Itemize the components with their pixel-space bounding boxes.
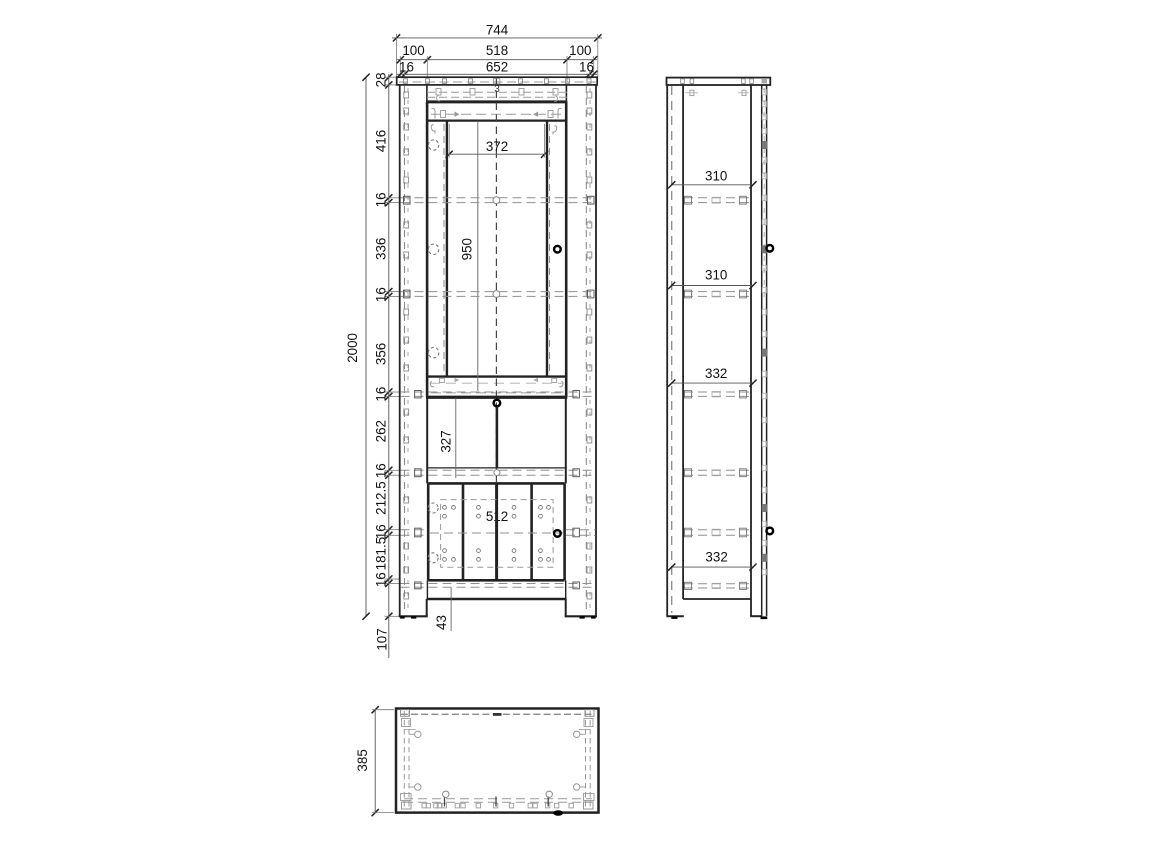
svg-text:16: 16 [579,59,594,74]
svg-text:16: 16 [374,572,389,587]
svg-text:16: 16 [374,192,389,207]
svg-text:16: 16 [399,59,414,74]
svg-text:950: 950 [460,238,475,260]
svg-text:327: 327 [439,430,454,452]
svg-text:212.5: 212.5 [374,481,389,515]
svg-text:43: 43 [434,615,449,630]
svg-text:28: 28 [374,72,389,87]
svg-text:2000: 2000 [345,333,360,363]
svg-text:385: 385 [355,749,370,771]
svg-text:518: 518 [486,43,508,58]
svg-text:16: 16 [374,387,389,402]
svg-text:356: 356 [374,343,389,365]
svg-text:310: 310 [705,268,727,283]
svg-text:16: 16 [374,287,389,302]
svg-text:416: 416 [374,130,389,152]
svg-text:100: 100 [402,43,424,58]
svg-text:744: 744 [486,23,509,38]
svg-text:332: 332 [705,550,727,565]
svg-text:652: 652 [486,59,508,74]
svg-text:372: 372 [486,139,508,154]
svg-text:332: 332 [705,366,727,381]
svg-text:100: 100 [569,43,591,58]
svg-text:336: 336 [374,238,389,260]
svg-text:3: 3 [494,84,500,95]
svg-text:181.5: 181.5 [374,537,389,571]
svg-text:310: 310 [705,168,727,183]
svg-text:107: 107 [375,628,390,650]
svg-text:16: 16 [374,463,389,478]
svg-text:262: 262 [374,420,389,442]
